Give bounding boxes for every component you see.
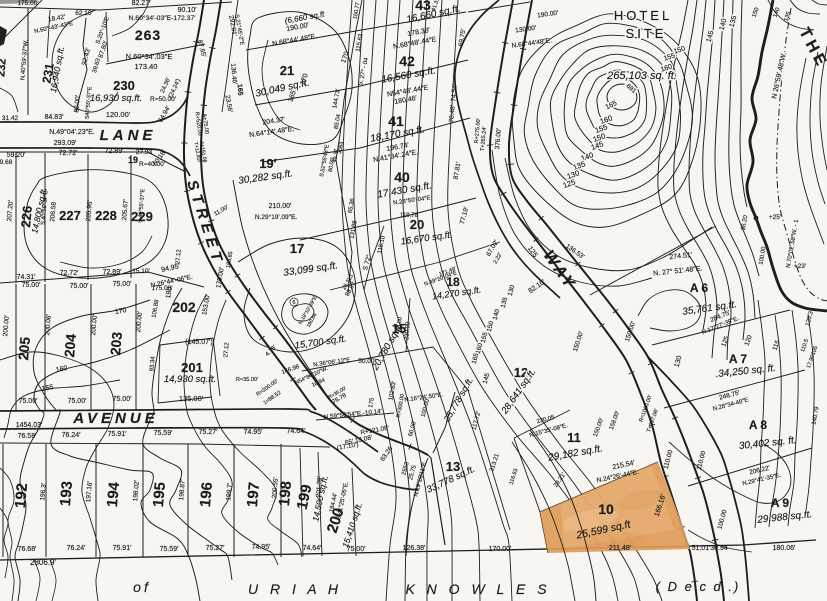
- svg-text:27.93: 27.93: [136, 149, 153, 156]
- svg-text:205: 205: [15, 336, 33, 361]
- svg-text:41: 41: [388, 113, 404, 129]
- svg-text:198: 198: [276, 480, 295, 506]
- svg-text:210.00′: 210.00′: [269, 203, 292, 210]
- svg-text:N.29°19′.09″E.: N.29°19′.09″E.: [255, 213, 297, 221]
- svg-text:6: 6: [292, 300, 295, 306]
- svg-text:75.27′: 75.27′: [199, 429, 219, 436]
- svg-text:196: 196: [197, 481, 216, 507]
- svg-text:76.58′: 76.58′: [18, 433, 38, 440]
- svg-text:19′: 19′: [259, 156, 277, 171]
- svg-text:17: 17: [290, 241, 304, 256]
- svg-text:of: of: [133, 579, 151, 595]
- svg-text:76.68′: 76.68′: [18, 546, 38, 553]
- svg-text:59.20′: 59.20′: [7, 152, 27, 159]
- svg-text:75.00′: 75.00′: [347, 546, 367, 553]
- svg-text:72.72′: 72.72′: [60, 270, 80, 277]
- svg-text:42: 42: [399, 53, 415, 69]
- svg-text:93.50: 93.50: [396, 317, 403, 331]
- svg-text:LANE: LANE: [100, 127, 157, 144]
- svg-text:HOTEL: HOTEL: [614, 8, 672, 23]
- svg-text:230: 230: [113, 78, 135, 93]
- svg-text:75.00′: 75.00′: [70, 283, 90, 290]
- svg-text:SITE: SITE: [626, 26, 667, 41]
- svg-text:R=50.00′: R=50.00′: [150, 96, 177, 103]
- svg-text:A 6: A 6: [690, 281, 709, 295]
- svg-text:75.00′: 75.00′: [113, 396, 133, 403]
- svg-text:120.00′: 120.00′: [106, 110, 131, 119]
- svg-text:194: 194: [104, 481, 123, 508]
- svg-text:75.00′: 75.00′: [19, 398, 39, 405]
- svg-text:N.49°04′.23″E.: N.49°04′.23″E.: [49, 128, 95, 136]
- svg-text:A 9: A 9: [771, 496, 790, 510]
- svg-text:192: 192: [12, 482, 31, 508]
- svg-text:180.06′: 180.06′: [773, 545, 796, 552]
- svg-text:75.59′: 75.59′: [154, 430, 174, 437]
- svg-text:211.48′: 211.48′: [609, 545, 632, 552]
- svg-text:76.24′: 76.24′: [62, 432, 82, 439]
- svg-text:74.31′: 74.31′: [17, 274, 37, 281]
- svg-text:119.78: 119.78: [400, 213, 419, 219]
- svg-text:72.89′: 72.89′: [105, 148, 125, 155]
- svg-text:30.94: 30.94: [710, 545, 728, 552]
- svg-text:9.68: 9.68: [0, 159, 13, 166]
- svg-text:293.09′: 293.09′: [54, 140, 77, 147]
- svg-text:A 7: A 7: [729, 352, 748, 366]
- svg-text:A 8: A 8: [749, 418, 768, 432]
- svg-text:51.01′: 51.01′: [692, 545, 712, 552]
- svg-text:76.24′: 76.24′: [67, 545, 87, 552]
- svg-text:(145.07′): (145.07′): [185, 339, 212, 346]
- svg-text:193: 193: [57, 480, 76, 506]
- svg-text:75.00′: 75.00′: [68, 398, 88, 405]
- svg-text:175.00′: 175.00′: [17, 0, 39, 7]
- svg-text:20: 20: [410, 217, 424, 232]
- svg-text:16,930 sq.ft.: 16,930 sq.ft.: [90, 93, 142, 104]
- svg-text:201: 201: [181, 360, 203, 375]
- svg-text:197: 197: [244, 481, 263, 507]
- svg-text:N.60°34′-03″E-172.37′: N.60°34′-03″E-172.37′: [129, 14, 197, 22]
- svg-text:90.10′: 90.10′: [178, 7, 198, 14]
- svg-text:202: 202: [172, 299, 196, 315]
- svg-text:21: 21: [280, 63, 294, 78]
- svg-text:75.59′: 75.59′: [160, 546, 180, 553]
- svg-text:84.83′: 84.83′: [45, 114, 65, 121]
- svg-text:227: 227: [59, 208, 81, 223]
- svg-text:1454.03′: 1454.03′: [16, 422, 43, 429]
- svg-text:135.00′: 135.00′: [179, 394, 204, 403]
- svg-text:11: 11: [567, 430, 581, 445]
- svg-text:+25′: +25′: [769, 214, 782, 221]
- svg-text:50.00′: 50.00′: [358, 358, 376, 365]
- svg-text:N.60°34′.03″E: N.60°34′.03″E: [126, 52, 173, 61]
- svg-text:75.91′: 75.91′: [108, 431, 128, 438]
- svg-text:19: 19: [128, 155, 138, 165]
- svg-text:72.89′: 72.89′: [103, 269, 123, 276]
- svg-text:203: 203: [107, 331, 125, 356]
- svg-text:75.91′: 75.91′: [113, 545, 133, 552]
- svg-text:82.27′: 82.27′: [132, 0, 152, 7]
- svg-text:263: 263: [135, 27, 161, 43]
- svg-text:15.10′: 15.10′: [132, 268, 150, 275]
- svg-text:228: 228: [95, 208, 117, 223]
- svg-text:31.42: 31.42: [2, 115, 19, 122]
- svg-text:R=40.00′: R=40.00′: [139, 161, 166, 168]
- svg-text:+23′: +23′: [794, 263, 807, 270]
- svg-text:14,930 sq.ft.: 14,930 sq.ft.: [164, 374, 216, 385]
- svg-text:40: 40: [394, 169, 410, 185]
- svg-text:AVENUE: AVENUE: [72, 410, 158, 427]
- svg-text:74.64′: 74.64′: [303, 545, 323, 552]
- svg-text:74.64′: 74.64′: [287, 428, 307, 435]
- svg-text:204: 204: [61, 333, 79, 358]
- svg-text:74.95′: 74.95′: [244, 429, 264, 436]
- svg-text:170.00′: 170.00′: [489, 546, 512, 553]
- svg-text:173.40: 173.40: [135, 62, 158, 71]
- svg-text:( D e c d .): ( D e c d .): [656, 579, 741, 594]
- svg-text:62.10′: 62.10′: [75, 10, 93, 17]
- svg-text:75.00′: 75.00′: [22, 282, 42, 289]
- svg-text:10: 10: [598, 501, 614, 517]
- svg-text:74.95′: 74.95′: [252, 544, 272, 551]
- svg-text:165: 165: [235, 84, 243, 96]
- svg-text:U R I A H: U R I A H: [248, 581, 342, 597]
- svg-text:126.38′: 126.38′: [403, 545, 426, 552]
- svg-text:75.00′: 75.00′: [113, 281, 133, 288]
- svg-text:2806.9′: 2806.9′: [30, 558, 56, 567]
- svg-text:72.72′: 72.72′: [59, 150, 79, 157]
- svg-text:195: 195: [150, 481, 169, 507]
- svg-text:75.27′: 75.27′: [206, 545, 226, 552]
- svg-text:R=35.00′: R=35.00′: [236, 377, 258, 383]
- svg-text:K N O W L E S: K N O W L E S: [405, 581, 550, 597]
